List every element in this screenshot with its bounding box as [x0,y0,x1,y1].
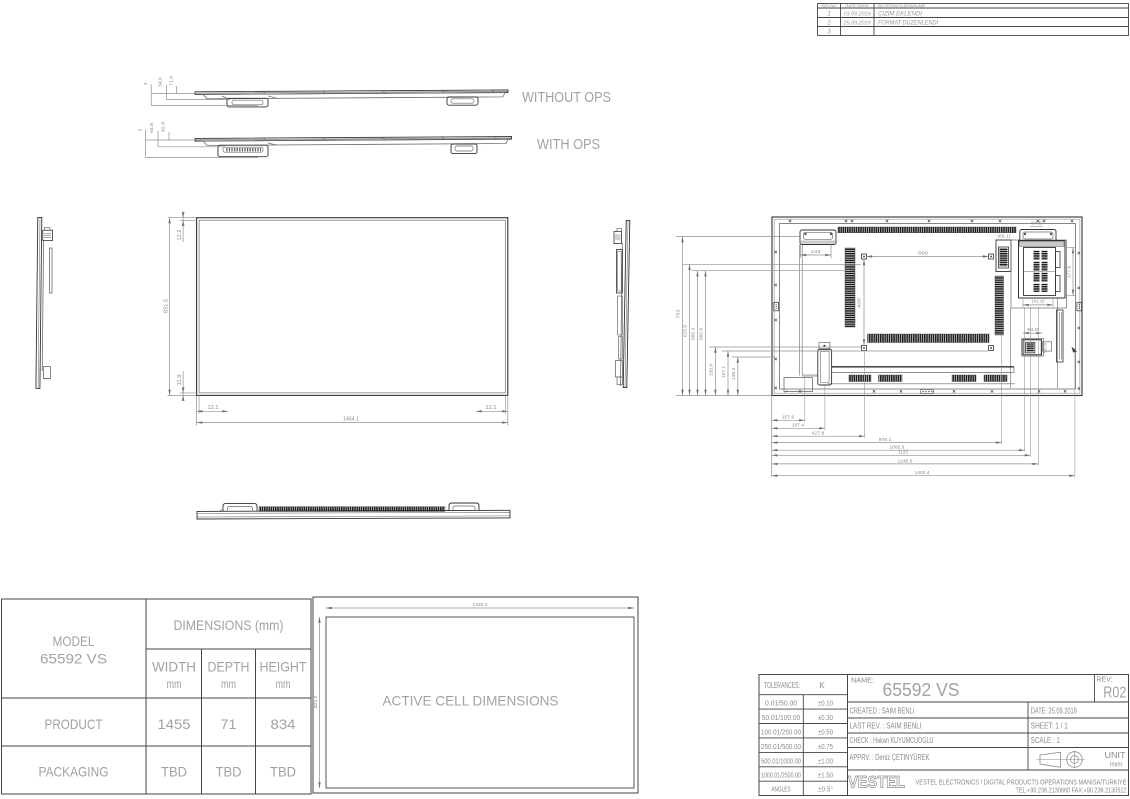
svg-text:WITH OPS: WITH OPS [537,136,600,153]
svg-text:12.1: 12.1 [486,405,497,411]
svg-text:1454.1: 1454.1 [343,416,359,422]
svg-text:±0.75: ±0.75 [818,744,833,751]
svg-text:250.01/500.00: 250.01/500.00 [761,744,801,751]
svg-text:1: 1 [827,11,831,18]
svg-text:1246.6: 1246.6 [898,458,913,463]
svg-text:±0.30: ±0.30 [818,715,833,722]
svg-text:197.4: 197.4 [792,423,805,428]
svg-text:ÇIZIM EKLENDI: ÇIZIM EKLENDI [878,12,922,18]
svg-text:REV:: REV: [1097,675,1113,684]
svg-text:APPRV. : Deniz ÇETINYÜREK: APPRV. : Deniz ÇETINYÜREK [850,753,930,762]
svg-text:SHEET: 1 / 1: SHEET: 1 / 1 [1031,722,1068,731]
svg-text:03.09.2019: 03.09.2019 [844,12,871,18]
svg-text:DIMENSIONS (mm): DIMENSIONS (mm) [174,617,284,633]
svg-text:±1.50: ±1.50 [818,773,833,780]
svg-text:MODEL: MODEL [53,633,95,649]
svg-text:12.2: 12.2 [177,229,183,240]
svg-text:34.6: 34.6 [158,76,163,87]
svg-text:65592 VS: 65592 VS [40,651,107,667]
svg-text:12.1: 12.1 [208,405,219,411]
svg-text:3: 3 [827,29,831,36]
svg-text:600: 600 [918,251,928,257]
svg-text:100.01/250.00: 100.01/250.00 [761,730,801,737]
svg-text:WIDTH: WIDTH [152,659,196,675]
svg-text:2: 2 [826,20,831,27]
svg-text:K: K [819,681,825,690]
svg-text:64.8: 64.8 [149,122,154,133]
svg-text:157.1: 157.1 [721,366,726,378]
svg-text:UNIT: UNIT [1105,750,1126,760]
svg-text:(66.1): (66.1) [998,234,1012,239]
svg-text:PACKAGING: PACKAGING [39,764,109,780]
svg-text:1123: 1123 [898,450,908,455]
svg-text:1455: 1455 [158,716,191,732]
svg-text:WITHOUT OPS: WITHOUT OPS [522,89,611,106]
svg-text:1402.4: 1402.4 [915,470,930,475]
svg-text:SCALE : 1: SCALE : 1 [1031,736,1060,745]
svg-text:25.09.2019: 25.09.2019 [843,21,871,27]
svg-text:VESTEL: VESTEL [848,773,905,792]
svg-text:TBD: TBD [161,764,187,780]
svg-text:±1.00: ±1.00 [818,758,833,765]
svg-text:VESTEL ELECTRONICS / DIGITAL P: VESTEL ELECTRONICS / DIGITAL PRODUCTS OP… [916,780,1127,787]
svg-text:mm: mm [276,677,291,691]
svg-text:1000.01/2500.00: 1000.01/2500.00 [761,773,801,780]
svg-text:139.3: 139.3 [731,368,736,380]
svg-text:ANGLES: ANGLES [771,787,790,794]
svg-text:NOTES/NOTLAR/ANLAMI: NOTES/NOTLAR/ANLAMI [878,3,926,8]
svg-text:NAME:: NAME: [851,676,874,685]
svg-text:141.16: 141.16 [1032,299,1045,304]
svg-text:TBD: TBD [270,764,296,780]
svg-text:978.1: 978.1 [879,437,892,442]
svg-text:834: 834 [271,716,296,732]
svg-text:177.8: 177.8 [1067,265,1072,278]
svg-text:803.5: 803.5 [313,695,319,708]
svg-text:DATE: 25.09.2019: DATE: 25.09.2019 [1031,707,1077,716]
svg-text:TBD: TBD [216,764,242,780]
svg-text:REV.NO: REV.NO [821,3,836,8]
svg-text:mm: mm [221,677,236,691]
svg-text:94.8: 94.8 [1027,327,1039,332]
svg-text:400: 400 [857,298,863,308]
svg-text:235.9: 235.9 [708,364,713,376]
svg-text:65592 VS: 65592 VS [883,680,960,700]
svg-text:TOLERANCES:: TOLERANCES: [764,681,800,690]
svg-text:PRODUCT: PRODUCT [45,716,103,732]
svg-text:HEIGHT: HEIGHT [260,659,307,675]
svg-text:71: 71 [221,716,237,732]
svg-text:753: 753 [676,309,681,319]
svg-text:11.9: 11.9 [177,374,183,385]
svg-text:±0.10: ±0.10 [818,701,833,708]
svg-text:DEPTH: DEPTH [208,659,250,675]
svg-text:mm: mm [1110,762,1122,769]
svg-text:LAST REV. : SAIM BENLI: LAST REV. : SAIM BENLI [850,722,922,731]
svg-text:50.8: 50.8 [1043,342,1048,353]
svg-text:427.8: 427.8 [812,431,825,436]
svg-text:ACTIVE CELL DIMENSIONS: ACTIVE CELL DIMENSIONS [383,693,559,709]
svg-text:mm: mm [167,677,182,691]
svg-text:615.8: 615.8 [683,325,688,337]
svg-text:0.01/50.00: 0.01/50.00 [765,701,797,708]
svg-text:TEL:+90.236.2130660 FAX:+90.23: TEL:+90.236.2130660 FAX:+90.236.2130512 [1016,788,1127,795]
svg-text:589.3: 589.3 [691,328,696,340]
svg-text:50.01/100.00: 50.01/100.00 [762,715,800,722]
svg-text:±0.50: ±0.50 [818,730,833,737]
svg-text:1428.2: 1428.2 [473,602,488,608]
svg-text:831.5: 831.5 [164,299,170,313]
svg-text:±0.5°: ±0.5° [818,786,833,794]
svg-text:84.5: 84.5 [1031,221,1042,226]
svg-text:CHECK : Hakan KUYUMCUOGLU: CHECK : Hakan KUYUMCUOGLU [850,736,934,745]
svg-text:R02: R02 [1103,685,1126,702]
svg-text:157.6: 157.6 [782,415,795,420]
svg-text:DATE/TARIH: DATE/TARIH [845,3,868,8]
svg-text:82.4: 82.4 [161,121,166,132]
svg-text:500.01/1000.00: 500.01/1000.00 [761,758,801,765]
svg-text:71.9: 71.9 [169,75,174,86]
svg-text:585.8: 585.8 [699,328,704,340]
svg-text:CREATED : SAIM BENLI: CREATED : SAIM BENLI [850,707,915,716]
svg-text:143: 143 [811,249,821,255]
svg-text:FORMAT DUZENLENDI: FORMAT DUZENLENDI [878,21,938,27]
